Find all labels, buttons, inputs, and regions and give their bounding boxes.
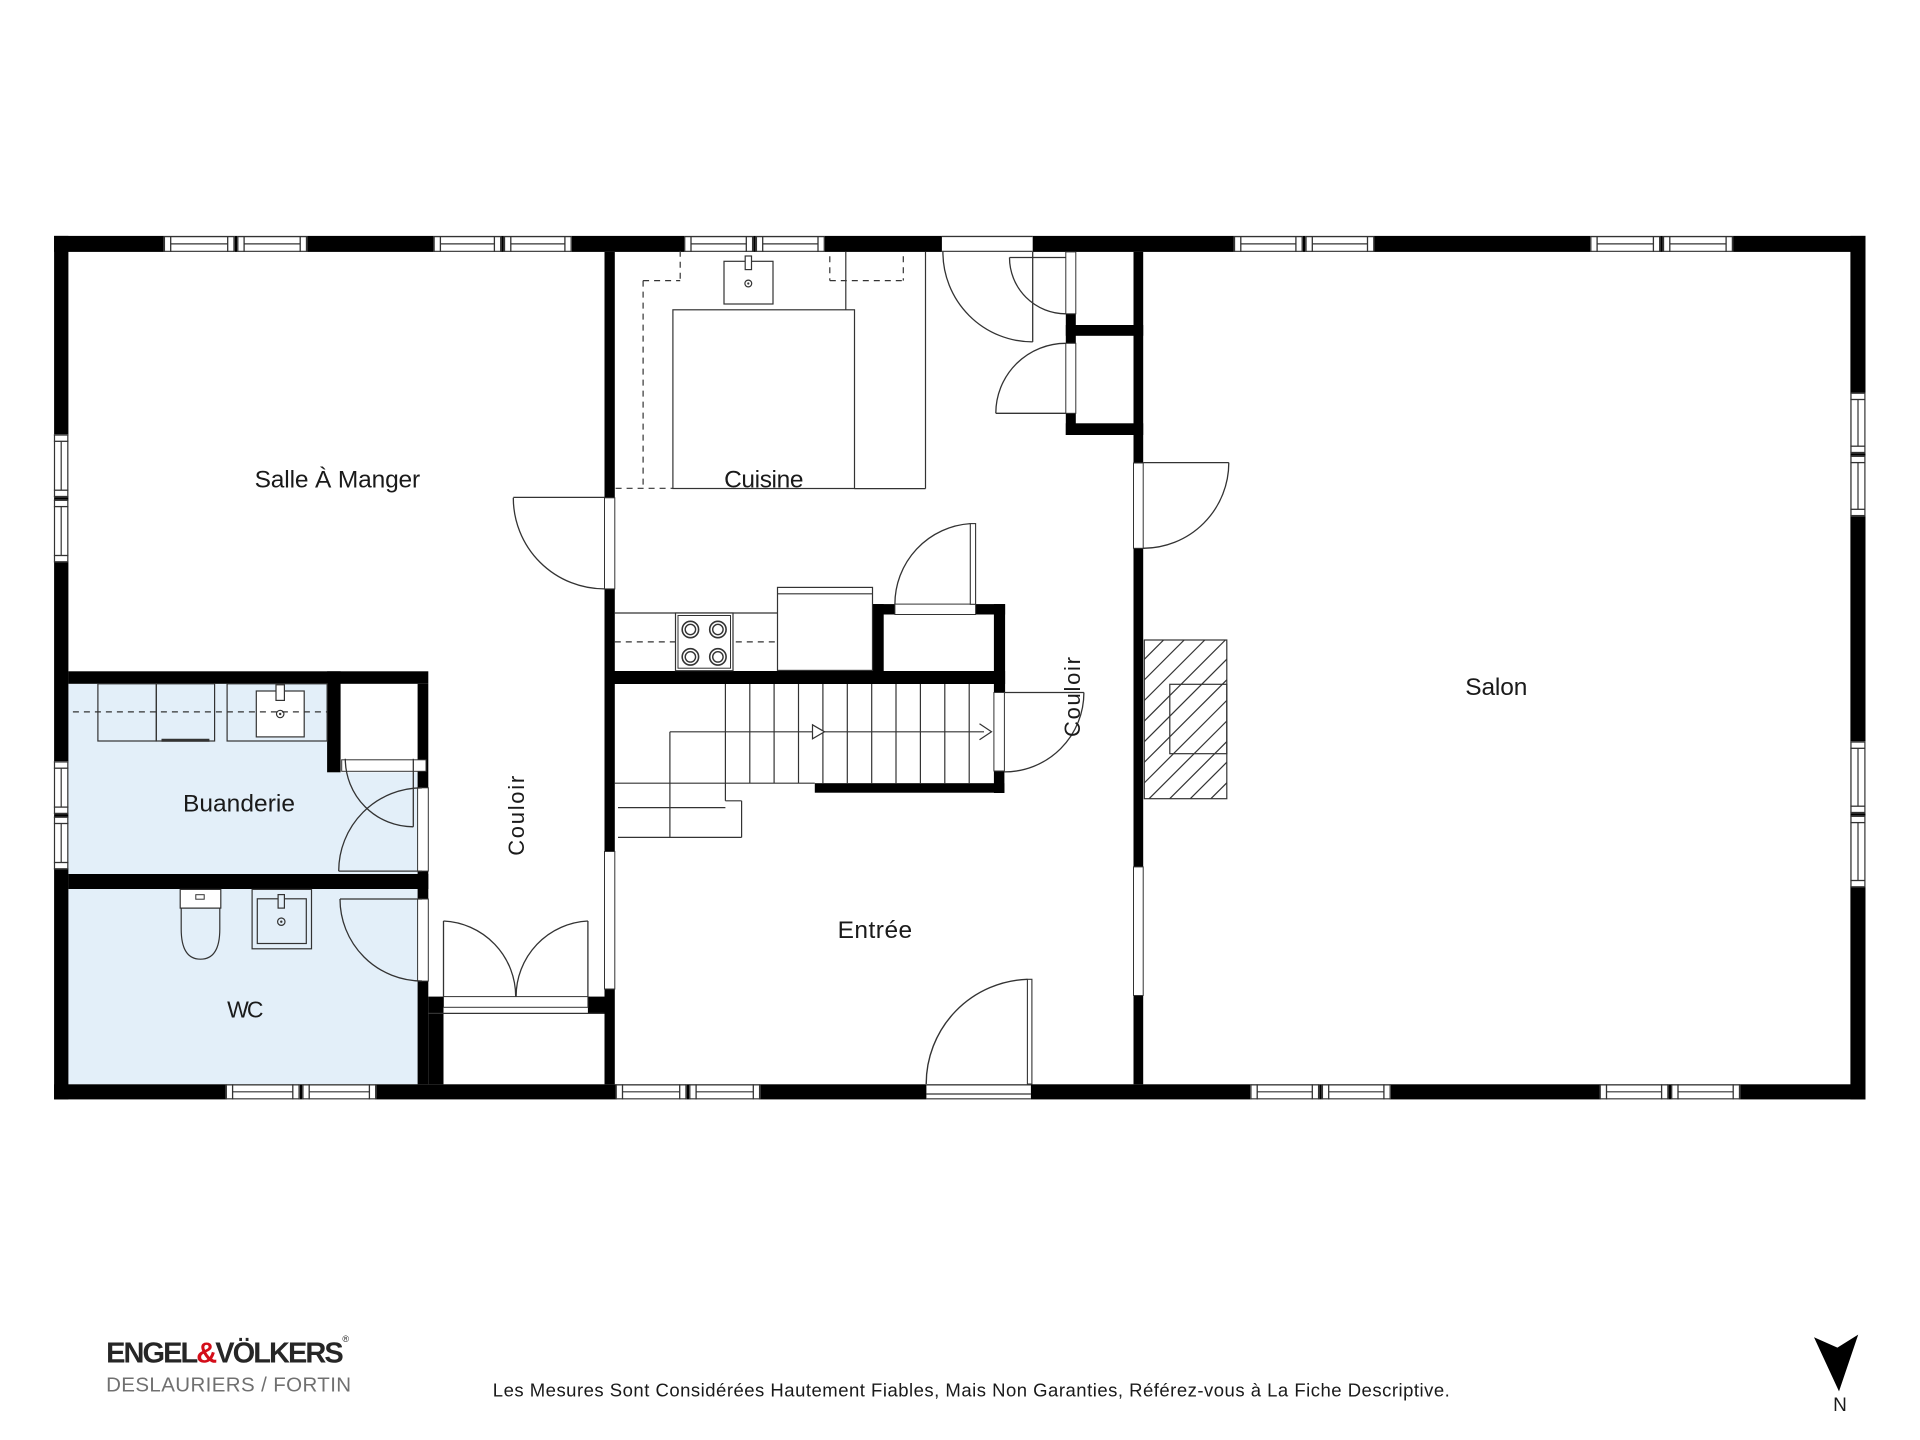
svg-text:DESLAURIERS / FORTIN: DESLAURIERS / FORTIN [106,1374,351,1397]
svg-text:Les Mesures Sont Considérées H: Les Mesures Sont Considérées Hautement F… [493,1380,1450,1401]
svg-text:®: ® [342,1334,349,1344]
svg-text:Salle À Manger: Salle À Manger [255,467,421,494]
svg-text:Buanderie: Buanderie [183,791,295,818]
svg-text:Couloir: Couloir [504,776,529,856]
svg-text:ENGEL&VÖLKERS: ENGEL&VÖLKERS [106,1337,344,1370]
svg-text:Couloir: Couloir [1060,657,1085,737]
svg-text:WC: WC [227,997,263,1023]
svg-text:Entrée: Entrée [838,917,913,944]
svg-text:Cuisine: Cuisine [724,467,803,494]
svg-text:Salon: Salon [1465,674,1527,701]
svg-text:N: N [1833,1395,1847,1416]
